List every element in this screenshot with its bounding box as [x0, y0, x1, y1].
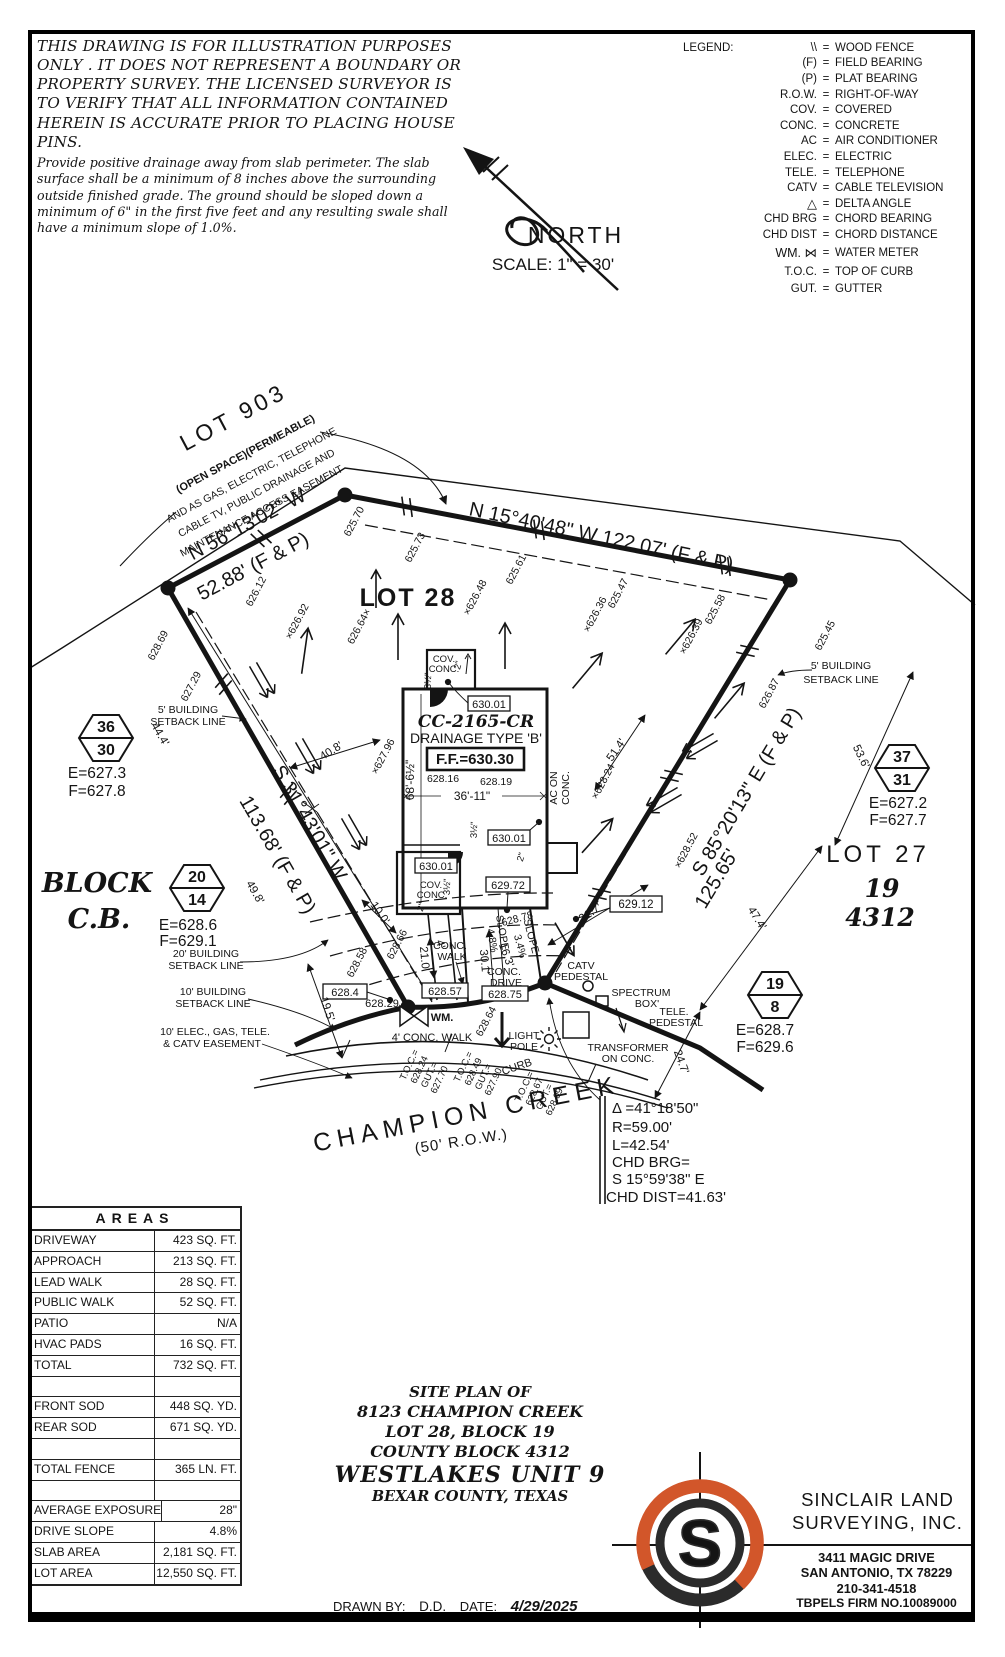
boxed-6284: 628.4	[331, 987, 359, 999]
spot-elev: 625.58	[703, 592, 729, 626]
hex3-f: F=627.7	[869, 812, 926, 829]
setback-5-right-1: 5' BUILDING	[811, 660, 871, 672]
conc-walk-2: WALK	[437, 951, 466, 963]
date-value: 4/29/2025	[501, 1598, 588, 1616]
table-row: TOTAL732 SQ. FT.	[30, 1356, 240, 1377]
table-row-blank	[30, 1377, 240, 1398]
legend-desc: CABLE TELEVISION	[835, 182, 973, 194]
house-drainage: DRAINAGE TYPE 'B'	[410, 730, 542, 746]
boxed-62912: 629.12	[618, 899, 653, 911]
house-model: CC-2165-CR	[418, 712, 534, 732]
legend-sym-toc: T.O.C.	[743, 266, 817, 278]
title-line-4: COUNTY BLOCK 4312	[330, 1442, 610, 1462]
spot-elev: 628.64	[474, 1004, 500, 1038]
bearing-top: N 15°40'48" W 122.07' (F & P)	[467, 498, 735, 576]
table-row: PATION/A	[30, 1314, 240, 1335]
disclaimer-main: THIS DRAWING IS FOR ILLUSTRATION PURPOSE…	[37, 37, 465, 152]
areas-table-title: AREAS	[30, 1208, 240, 1231]
surveyor-block: S SINCLAIR LAND SURVEYING, INC. 3411 MAG…	[612, 1448, 975, 1630]
toc-stack-1: T.O.C.= 628.24 GUT.= 627.70	[398, 1047, 451, 1095]
site-plan-page: NORTH SCALE: 1" = 30'	[0, 0, 1005, 1657]
light-pole-icon	[537, 1027, 561, 1051]
boxed-62875: 628.75	[488, 989, 522, 1001]
tele-ped-2: PEDESTAL	[649, 1017, 703, 1029]
house-elev-1: 628.16	[427, 773, 459, 785]
dim-474: 47.4'	[745, 905, 768, 932]
legend-desc: ELECTRIC	[835, 151, 973, 163]
cov-porch-2: CONC.	[417, 890, 448, 901]
drawn-by-value: D.D.	[409, 1599, 456, 1615]
title-block: SITE PLAN OF 8123 CHAMPION CREEK LOT 28,…	[330, 1383, 610, 1507]
block-cb-1: BLOCK	[41, 868, 154, 899]
transformer-2: ON CONC.	[602, 1053, 655, 1065]
catv-2: PEDESTAL	[554, 971, 608, 983]
title-county: BEXAR COUNTY, TEXAS	[330, 1488, 610, 1507]
drawn-by-label: DRAWN BY:	[333, 1599, 405, 1614]
light-pole-2: POLE	[510, 1041, 538, 1053]
spectrum-2: BOX'	[635, 998, 659, 1010]
legend-sym-telephone: TELE.	[743, 167, 817, 179]
spot-elev: ×627.96	[369, 737, 398, 777]
legend-desc: CHORD BEARING	[835, 213, 973, 225]
ac-label-2: CONC.	[560, 771, 572, 805]
ac-label-1: AC ON	[548, 771, 560, 804]
hex1-e: E=627.3	[68, 765, 126, 782]
spot-elev: 625.61	[504, 552, 530, 586]
curve-length: L=42.54'	[612, 1137, 670, 1154]
legend-desc: AIR CONDITIONER	[835, 135, 973, 147]
dim35-mid: 3½"	[469, 821, 481, 838]
surveyor-phone: 210-341-4518	[774, 1581, 979, 1596]
dim35-top: 3½"	[423, 672, 435, 689]
spot-elev: 628.69	[146, 628, 172, 662]
legend-desc: TOP OF CURB	[835, 266, 973, 278]
conc-drive-2: DRIVE	[490, 977, 522, 989]
title-line-2: 8123 CHAMPION CREEK	[330, 1402, 610, 1422]
legend-sym-gutter: GUT.	[743, 283, 817, 295]
boxed-62857: 628.57	[428, 986, 462, 998]
table-row: TOTAL FENCE365 LN. FT.	[30, 1460, 240, 1481]
bearing-east-1: S 85°20'13" E (F & P)	[688, 704, 806, 880]
hex2-top: 20	[188, 869, 206, 886]
legend-sym-row: R.O.W.	[743, 89, 817, 101]
dim2-right: 2"	[515, 851, 528, 863]
surveyor-firm: TBPELS FIRM NO.10089000	[774, 1596, 979, 1611]
spot-elev: 625.47	[606, 576, 632, 610]
wm-label: WM.	[431, 1012, 454, 1024]
title-line-3: LOT 28, BLOCK 19	[330, 1422, 610, 1442]
table-row-blank	[30, 1481, 240, 1502]
hex4-f: F=629.6	[736, 1039, 793, 1056]
sinclair-logo-icon: S	[612, 1448, 788, 1630]
table-row: LOT AREA12,550 SQ. FT.	[30, 1564, 240, 1584]
legend-sym-concrete: CONC.	[743, 120, 817, 132]
surveyor-address-1: 3411 MAGIC DRIVE	[774, 1550, 979, 1565]
table-row: PUBLIC WALK52 SQ. FT.	[30, 1293, 240, 1314]
hex1-top: 36	[97, 719, 115, 736]
lot27-block: 19	[865, 874, 900, 903]
table-row: DRIVEWAY423 SQ. FT.	[30, 1231, 240, 1252]
legend-sym-plat-bearing: (P)	[743, 73, 817, 85]
easement-2: & CATV EASEMENT	[163, 1038, 261, 1050]
legend-desc: DELTA ANGLE	[835, 198, 973, 210]
spot-elev: 626.87	[757, 676, 783, 710]
legend-desc: CHORD DISTANCE	[835, 229, 973, 241]
legend-sym-chd-dist: CHD DIST	[743, 229, 817, 241]
setback-10-2: SETBACK LINE	[175, 998, 250, 1010]
legend-desc: PLAT BEARING	[835, 73, 973, 85]
table-row-blank	[30, 1439, 240, 1460]
legend: LEGEND:\\=WOOD FENCE (F)=FIELD BEARING (…	[683, 40, 973, 296]
house-depth: 68'-6½"	[403, 760, 417, 801]
table-row: DRIVE SLOPE4.8%	[30, 1522, 240, 1543]
legend-sym-wood-fence: \\	[743, 42, 817, 54]
spot-elev: ×626.36	[581, 595, 610, 635]
spot-elev: 626.64×	[345, 607, 374, 646]
dim-49: 49.8'	[243, 879, 266, 906]
curve-chd-dist: CHD DIST=41.63'	[606, 1189, 726, 1206]
setback-10-1: 10' BUILDING	[180, 986, 246, 998]
block-cb-2: C.B.	[68, 904, 131, 935]
lot27-label: LOT 27	[826, 841, 930, 868]
hex3-bot: 31	[893, 772, 911, 789]
curve-chd-brg-label: CHD BRG=	[612, 1154, 690, 1171]
hex2-e: E=628.6	[159, 917, 217, 934]
dim-536: 53.6'	[850, 743, 872, 770]
legend-sym-field-bearing: (F)	[743, 57, 817, 69]
table-row: REAR SOD671 SQ. YD.	[30, 1418, 240, 1439]
legend-sym-water-meter-icon: WM. ⋈	[743, 245, 817, 260]
svg-text:S: S	[678, 1506, 722, 1580]
house-ff: F.F.=630.30	[436, 751, 514, 768]
legend-sym-ac: AC	[743, 135, 817, 147]
table-row: SLAB AREA2,181 SQ. FT.	[30, 1543, 240, 1564]
house-width: 36'-11"	[454, 789, 490, 803]
drawn-by-line: DRAWN BY: D.D. DATE: 4/29/2025	[333, 1598, 587, 1616]
setback-5-left-1: 5' BUILDING	[158, 704, 218, 716]
legend-sym-electric: ELEC.	[743, 151, 817, 163]
dim-100: 10.0'	[367, 900, 391, 927]
dim-217: 21.7'	[577, 902, 604, 925]
legend-desc: WATER METER	[835, 247, 973, 259]
table-row: AVERAGE EXPOSURE28"	[30, 1501, 240, 1522]
hex4-bot: 8	[771, 999, 780, 1016]
house-elev-2: 628.19	[480, 776, 512, 788]
setback-5-left-2: SETBACK LINE	[150, 716, 225, 728]
curve-chd-brg: S 15°59'38" E	[612, 1171, 705, 1188]
toc-stack-2: T.O.C.= 628.49 GUT.= 627.90	[452, 1049, 505, 1097]
legend-desc: TELEPHONE	[835, 167, 973, 179]
hex4-e: E=628.7	[736, 1022, 794, 1039]
areas-table: AREAS DRIVEWAY423 SQ. FT. APPROACH213 SQ…	[28, 1206, 242, 1586]
spot-elev: 628.66	[385, 927, 411, 961]
boxed-630-c: 630.01	[492, 833, 526, 845]
boxed-62972: 629.72	[491, 880, 525, 892]
dim-210: 21.0'	[417, 946, 431, 972]
surveyor-name-2: SURVEYING, INC.	[780, 1511, 975, 1534]
legend-desc: WOOD FENCE	[835, 42, 973, 54]
title-subdivision: WESTLAKES UNIT 9	[330, 1462, 610, 1488]
hex3-top: 37	[893, 749, 911, 766]
surveyor-job-number: JOB NUMBER: S-202581151	[774, 1611, 979, 1626]
boxed-630-b: 630.01	[419, 861, 453, 873]
spot-elev: 625.70	[342, 504, 368, 538]
north-label: NORTH	[528, 222, 624, 248]
spot-elev: 625.45	[813, 618, 839, 652]
easement-1: 10' ELEC., GAS, TELE.	[160, 1026, 270, 1038]
hex2-bot: 14	[188, 892, 206, 909]
hex4-top: 19	[766, 976, 784, 993]
adjacent-parcel-lines	[30, 468, 975, 668]
date-label: DATE:	[460, 1599, 497, 1614]
curve-radius: R=59.00'	[612, 1119, 672, 1136]
spot-elev: 628.29	[365, 998, 399, 1010]
surveyor-name-1: SINCLAIR LAND	[780, 1488, 975, 1511]
legend-sym-delta-icon: △	[743, 196, 817, 212]
setback-20-2: SETBACK LINE	[168, 960, 243, 972]
setback-5-right-2: SETBACK LINE	[803, 674, 878, 686]
title-line-1: SITE PLAN OF	[330, 1383, 610, 1402]
legend-sym-catv: CATV	[743, 182, 817, 194]
hex3-e: E=627.2	[869, 795, 927, 812]
walk4-label: 4' CONC. WALK	[392, 1032, 473, 1044]
table-row: APPROACH213 SQ. FT.	[30, 1252, 240, 1273]
lot27-cb: 4312	[845, 903, 915, 932]
spot-elev: 627.29	[179, 669, 205, 703]
scale-label: SCALE: 1" = 30'	[492, 255, 614, 274]
dim-408: 40.8'	[318, 740, 345, 763]
legend-desc: RIGHT-OF-WAY	[835, 89, 973, 101]
flow-arrows	[296, 570, 749, 1046]
legend-desc: GUTTER	[835, 283, 973, 295]
curve-delta: Δ =41°18'50"	[612, 1100, 698, 1117]
legend-sym-covered: COV.	[743, 104, 817, 116]
legend-desc: COVERED	[835, 104, 973, 116]
hex1-f: F=627.8	[68, 783, 125, 800]
table-row: LEAD WALK28 SQ. FT.	[30, 1273, 240, 1294]
dim2-top: 2"	[452, 660, 465, 671]
curve-data-bars	[600, 1096, 605, 1204]
dim-514: 51.4'	[605, 737, 629, 764]
legend-title: LEGEND:	[683, 42, 743, 54]
table-row: FRONT SOD448 SQ. YD.	[30, 1397, 240, 1418]
spot-elev: ×628.24	[589, 762, 618, 802]
surveyor-address-2: SAN ANTONIO, TX 78229	[774, 1565, 979, 1580]
legend-desc: CONCRETE	[835, 120, 973, 132]
disclaimer-drainage-note: Provide positive drainage away from slab…	[37, 155, 465, 237]
hex2-f: F=629.1	[159, 933, 216, 950]
lot28-label: LOT 28	[360, 584, 457, 612]
hex1-bot: 30	[97, 742, 115, 759]
disclaimer: THIS DRAWING IS FOR ILLUSTRATION PURPOSE…	[37, 37, 465, 237]
table-row: HVAC PADS16 SQ. FT.	[30, 1335, 240, 1356]
dim2-porch: 2"	[415, 901, 428, 913]
legend-desc: FIELD BEARING	[835, 57, 973, 69]
spot-elev: 625.73	[403, 530, 429, 564]
legend-sym-chd-brg: CHD BRG	[743, 213, 817, 225]
boxed-630-a: 630.01	[472, 699, 506, 711]
spot-elev: ×626.48	[461, 578, 490, 618]
